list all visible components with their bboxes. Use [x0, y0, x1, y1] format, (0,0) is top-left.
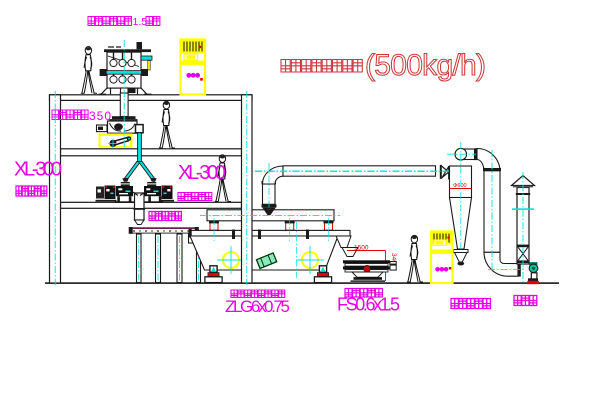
svg-text:Φ600: Φ600 — [453, 183, 467, 189]
svg-text:(500kg/h): (500kg/h) — [365, 49, 486, 82]
svg-text:1.5: 1.5 — [133, 16, 148, 28]
svg-text:FS0.6x1.5: FS0.6x1.5 — [337, 295, 400, 315]
svg-text:ZLG6x0.75: ZLG6x0.75 — [225, 297, 290, 316]
svg-text:1500: 1500 — [354, 245, 369, 252]
svg-text:XL-300: XL-300 — [178, 162, 226, 184]
svg-text:350: 350 — [89, 109, 111, 123]
